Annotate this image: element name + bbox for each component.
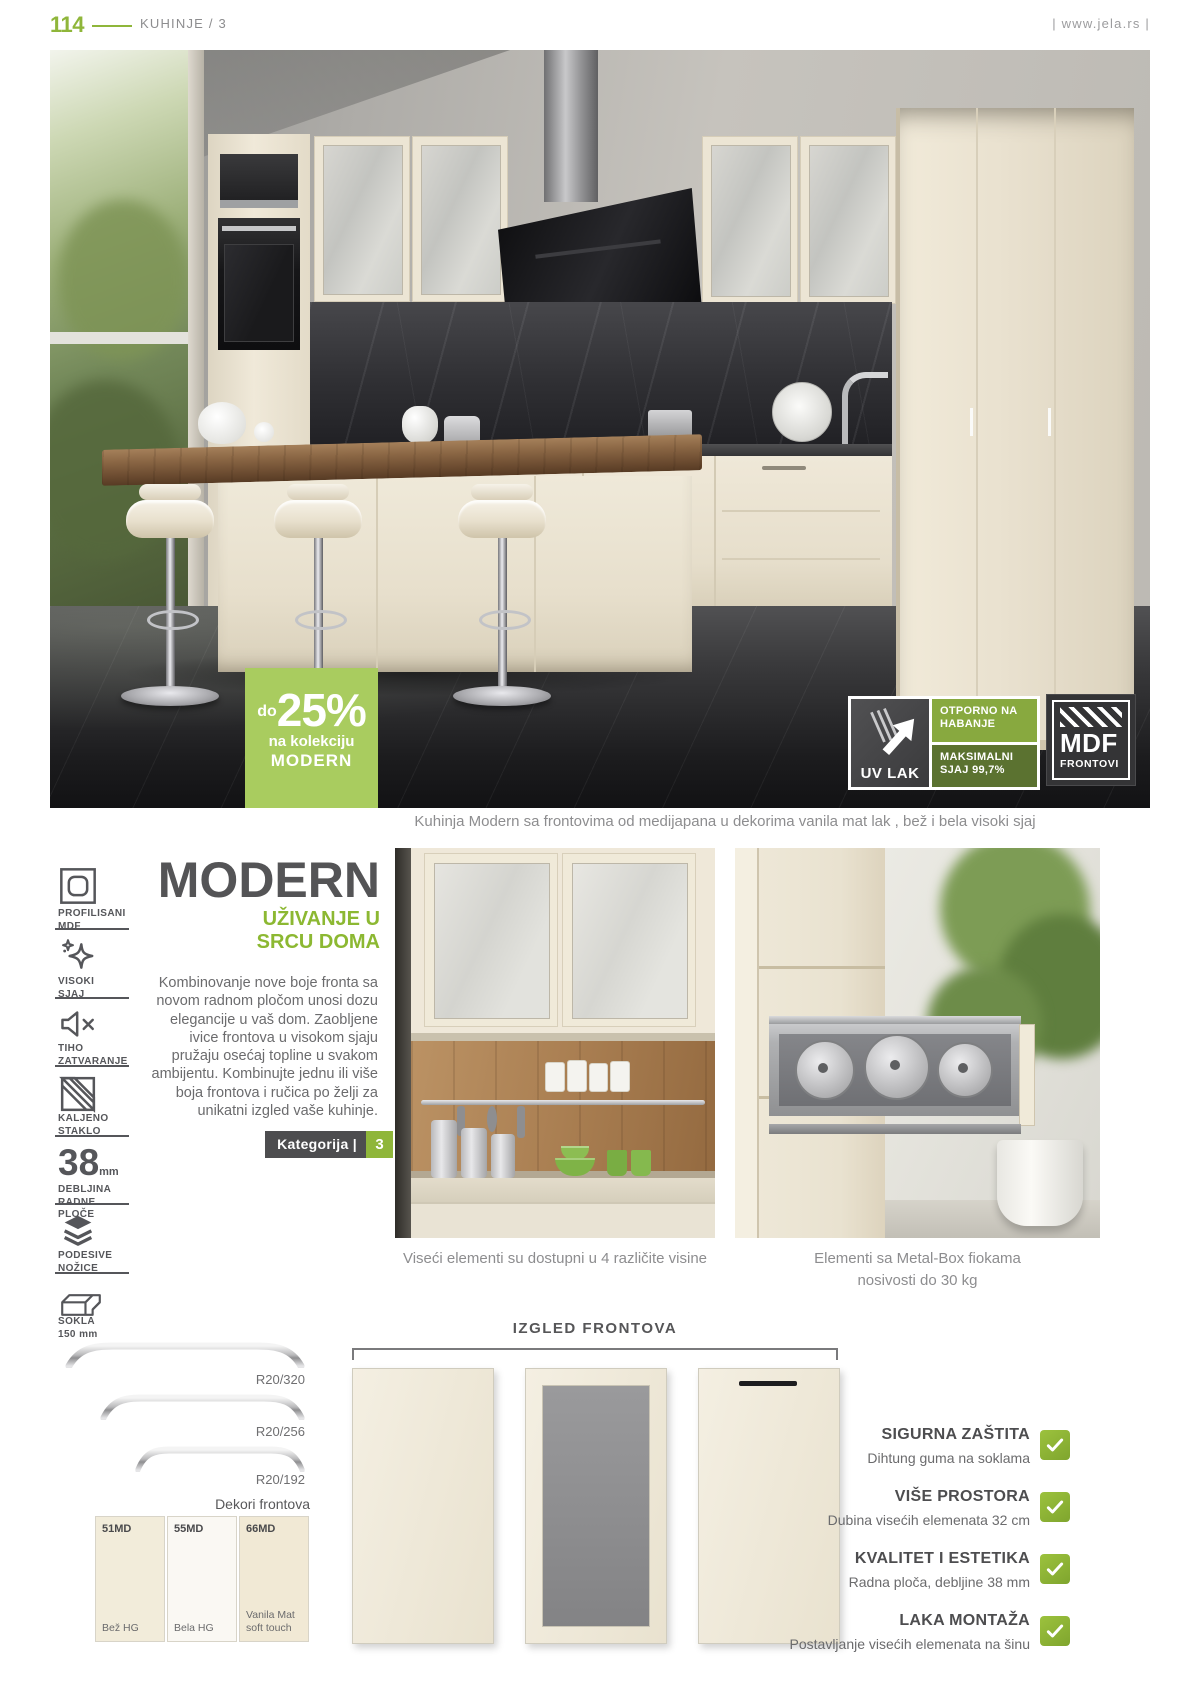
high-gloss-sparkle-icon: [58, 936, 130, 981]
kettle: [402, 406, 438, 444]
benefit-desc: Postavljanje visećih elemenata na šinu: [730, 1636, 1030, 1652]
upper-glass-cabinet: [412, 136, 508, 302]
collection-title: MODERN: [140, 855, 380, 905]
benefit-desc: Radna ploča, debljine 38 mm: [730, 1574, 1030, 1590]
site-url-link[interactable]: | www.jela.rs |: [1052, 16, 1150, 31]
hood-chimney: [544, 50, 598, 202]
green-cup: [631, 1150, 651, 1176]
gallery-caption-left: Viseći elementi su dostupni u 4 različit…: [395, 1248, 715, 1270]
decor-swatch-66md: 66MD Vanila Matsoft touch: [239, 1516, 309, 1642]
front-door-glass: [525, 1368, 667, 1644]
benefit-desc: Dihtung guma na soklama: [730, 1450, 1030, 1466]
decors-title: Dekori frontova: [95, 1496, 310, 1512]
collection-subtitle: UŽIVANJE USRCU DOMA: [140, 908, 380, 954]
sidebar-label-sokla: SOKLA150 mm: [58, 1316, 134, 1341]
handle-label: R20/320: [205, 1372, 305, 1387]
silent-close-speaker-icon: [58, 1006, 130, 1047]
sidebar-divider: [55, 1135, 129, 1137]
benefit-desc: Dubina visećih elemenata 32 cm: [730, 1512, 1030, 1528]
check-icon: [1040, 1430, 1070, 1460]
benefit-title: LAKA MONTAŽA: [730, 1612, 1030, 1630]
sidebar-divider: [55, 1065, 129, 1067]
discount-badge: do25% na kolekciju MODERN: [245, 668, 378, 808]
handle-image-r20-192: [135, 1446, 305, 1472]
sidebar-divider: [55, 997, 129, 999]
window-mullion: [50, 332, 202, 344]
page-number: 114: [50, 12, 84, 38]
benefit-title: VIŠE PROSTORA: [730, 1488, 1030, 1506]
discount-prefix: do: [257, 703, 277, 720]
gallery-photo-metalbox-drawer: [735, 848, 1100, 1238]
canister: [431, 1120, 457, 1178]
uv-badge-name: UV LAK: [851, 765, 929, 782]
category-label: Kategorija |: [265, 1131, 366, 1158]
upper-glass-cabinet: [314, 136, 410, 302]
uv-claim-top: OTPORNO NA HABANJE: [932, 699, 1037, 742]
collection-description: Kombinovanje nove boje fronta sa novom r…: [138, 974, 378, 1120]
discount-value: 25%: [277, 684, 366, 736]
check-icon: [1040, 1554, 1070, 1584]
profiled-mdf-icon: [58, 866, 130, 911]
decor-swatches: 51MD Bež HG 55MD Bela HG 66MD Vanila Mat…: [95, 1516, 311, 1642]
front-door-plain: [352, 1368, 494, 1644]
section-title: KUHINJE / 3: [140, 16, 227, 31]
canister: [491, 1134, 515, 1178]
mdf-badge-line1: MDF: [1060, 730, 1122, 756]
tall-pantry-cabinets: [896, 108, 1134, 750]
canister: [461, 1128, 487, 1178]
plant-pot: [997, 1140, 1083, 1226]
catalog-page: 114 KUHINJE / 3 | www.jela.rs |: [0, 0, 1200, 1697]
fronts-bracket-line: [352, 1348, 838, 1360]
hero-kitchen-photo: do25% na kolekciju MODERN UV LAK OTPORNO…: [50, 50, 1150, 808]
sidebar-divider: [55, 1203, 129, 1205]
fronts-section-title: IZGLED FRONTOVA: [352, 1320, 838, 1337]
handle-label: R20/256: [205, 1424, 305, 1439]
hero-caption: Kuhinja Modern sa frontovima od medijapa…: [350, 813, 1100, 830]
hatch-pattern-icon: [1060, 707, 1122, 727]
gallery-photo-wall-units: [395, 848, 715, 1238]
uv-lacquer-badge: UV LAK OTPORNO NA HABANJE MAKSIMALNI SJA…: [848, 696, 1040, 790]
discount-line3: MODERN: [245, 751, 378, 771]
header-rule: [92, 25, 132, 27]
utensil-rail: [421, 1100, 705, 1105]
gallery-caption-right: Elementi sa Metal-Box fiokamanosivosti d…: [735, 1248, 1100, 1292]
worktop-thickness-value: 38mm: [58, 1144, 119, 1181]
benefit-title: SIGURNA ZAŠTITA: [730, 1426, 1030, 1444]
door-handle: [739, 1381, 797, 1386]
green-cup: [607, 1150, 627, 1176]
check-icon: [1040, 1616, 1070, 1646]
upper-glass-cabinet: [800, 136, 896, 304]
upper-glass-cabinet: [702, 136, 798, 304]
built-in-oven: [218, 218, 300, 350]
handle-image-r20-320: [65, 1342, 305, 1368]
dish-plate: [772, 382, 832, 442]
handle-label: R20/192: [205, 1472, 305, 1487]
decor-swatch-51md: 51MD Bež HG: [95, 1516, 165, 1642]
sidebar-divider: [55, 928, 129, 930]
front-door-with-handle: [698, 1368, 840, 1644]
decor-swatch-55md: 55MD Bela HG: [167, 1516, 237, 1642]
handle-image-r20-256: [100, 1394, 305, 1420]
faucet: [842, 372, 888, 450]
mdf-fronts-badge: MDF FRONTOVI: [1046, 694, 1136, 786]
benefit-title: KVALITET I ESTETIKA: [730, 1550, 1030, 1568]
coffee-machine: [220, 154, 298, 208]
cup: [254, 422, 274, 442]
uv-claim-bottom: MAKSIMALNI SJAJ 99,7%: [932, 745, 1037, 788]
adjustable-feet-layers-icon: [58, 1210, 130, 1255]
teapot: [198, 402, 246, 444]
check-icon: [1040, 1492, 1070, 1522]
mdf-badge-line2: FRONTOVI: [1060, 758, 1122, 770]
uv-arrow-icon: [860, 703, 920, 755]
category-value: 3: [366, 1131, 393, 1158]
sidebar-divider: [55, 1272, 129, 1274]
category-badge: Kategorija | 3: [265, 1131, 393, 1158]
metalbox-drawer: [769, 1016, 1021, 1134]
